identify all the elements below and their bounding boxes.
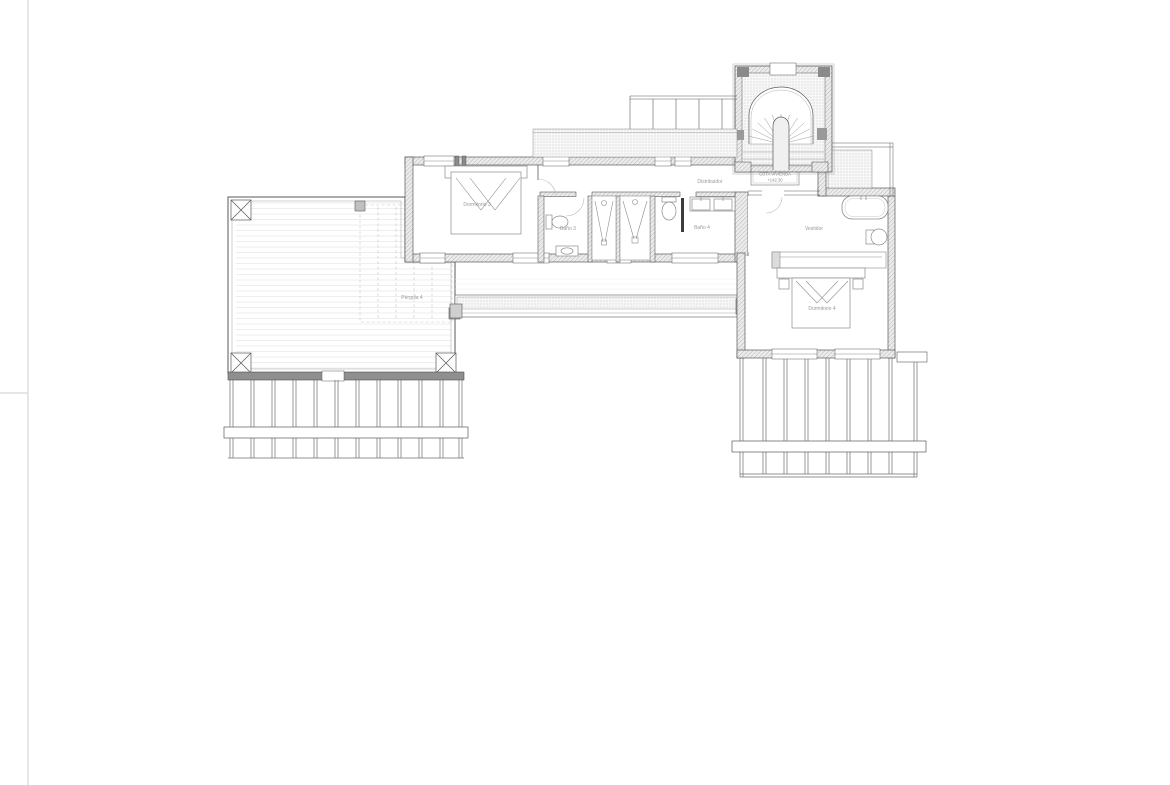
- pergola-post-top: [355, 201, 365, 211]
- stair-tower: [733, 63, 834, 174]
- slat-right-cap: [897, 352, 927, 362]
- stair-newel-wall: [773, 117, 789, 170]
- bathtub: [842, 196, 888, 219]
- bed-bedroom3: [445, 166, 527, 234]
- slat-left-rail: [224, 427, 468, 438]
- floor-plan-drawing: Pérgola 4: [0, 0, 1170, 785]
- bridge-step-lines: [455, 279, 737, 289]
- slat-right-rail: [732, 441, 926, 452]
- hallway-label: Distribuidor: [697, 179, 723, 185]
- elevation-note-value: +142.30: [767, 178, 783, 183]
- slat-right-bars: [740, 358, 917, 477]
- bath4-label: Baño 4: [694, 225, 710, 231]
- toilet4-tank: [662, 197, 676, 202]
- bath3-label: Baño 3: [560, 226, 576, 232]
- round-basin: [866, 229, 887, 245]
- closet-band: [772, 252, 886, 268]
- sink3-basin: [561, 248, 573, 254]
- dressing-top-wall: [748, 191, 820, 195]
- toilet4-bowl: [662, 202, 676, 220]
- shower-stall-1: [592, 196, 616, 260]
- upper-terrace: [533, 96, 737, 157]
- slat-structure-right: [732, 352, 927, 477]
- floor-plan-page: Pérgola 4: [0, 0, 1170, 785]
- toilet3-tank: [546, 215, 552, 229]
- upper-terrace-deck: [533, 129, 737, 157]
- bridge-band: [450, 279, 747, 318]
- pergola-label: Pérgola 4: [401, 295, 423, 301]
- slat-left-bars: [228, 380, 464, 458]
- bridge-post-left: [450, 304, 462, 318]
- slat-structure-left: [224, 371, 468, 458]
- stair-column-left: [737, 67, 749, 77]
- dressing-label: Vestidor: [805, 226, 823, 232]
- bedroom4-label: Dormitorio 4: [808, 306, 835, 312]
- stair-column-right: [818, 67, 830, 77]
- upper-terrace-railing: [630, 96, 737, 129]
- slat-left-gap: [322, 371, 344, 381]
- stair-top-window: [770, 63, 796, 75]
- stair-wall-block-right: [817, 128, 827, 140]
- bedroom3-label: Dormitorio 3: [463, 202, 490, 208]
- page-edge-lines: [0, 0, 28, 785]
- shower-stall-2: [620, 196, 650, 260]
- bath4-door-leaf: [681, 198, 684, 232]
